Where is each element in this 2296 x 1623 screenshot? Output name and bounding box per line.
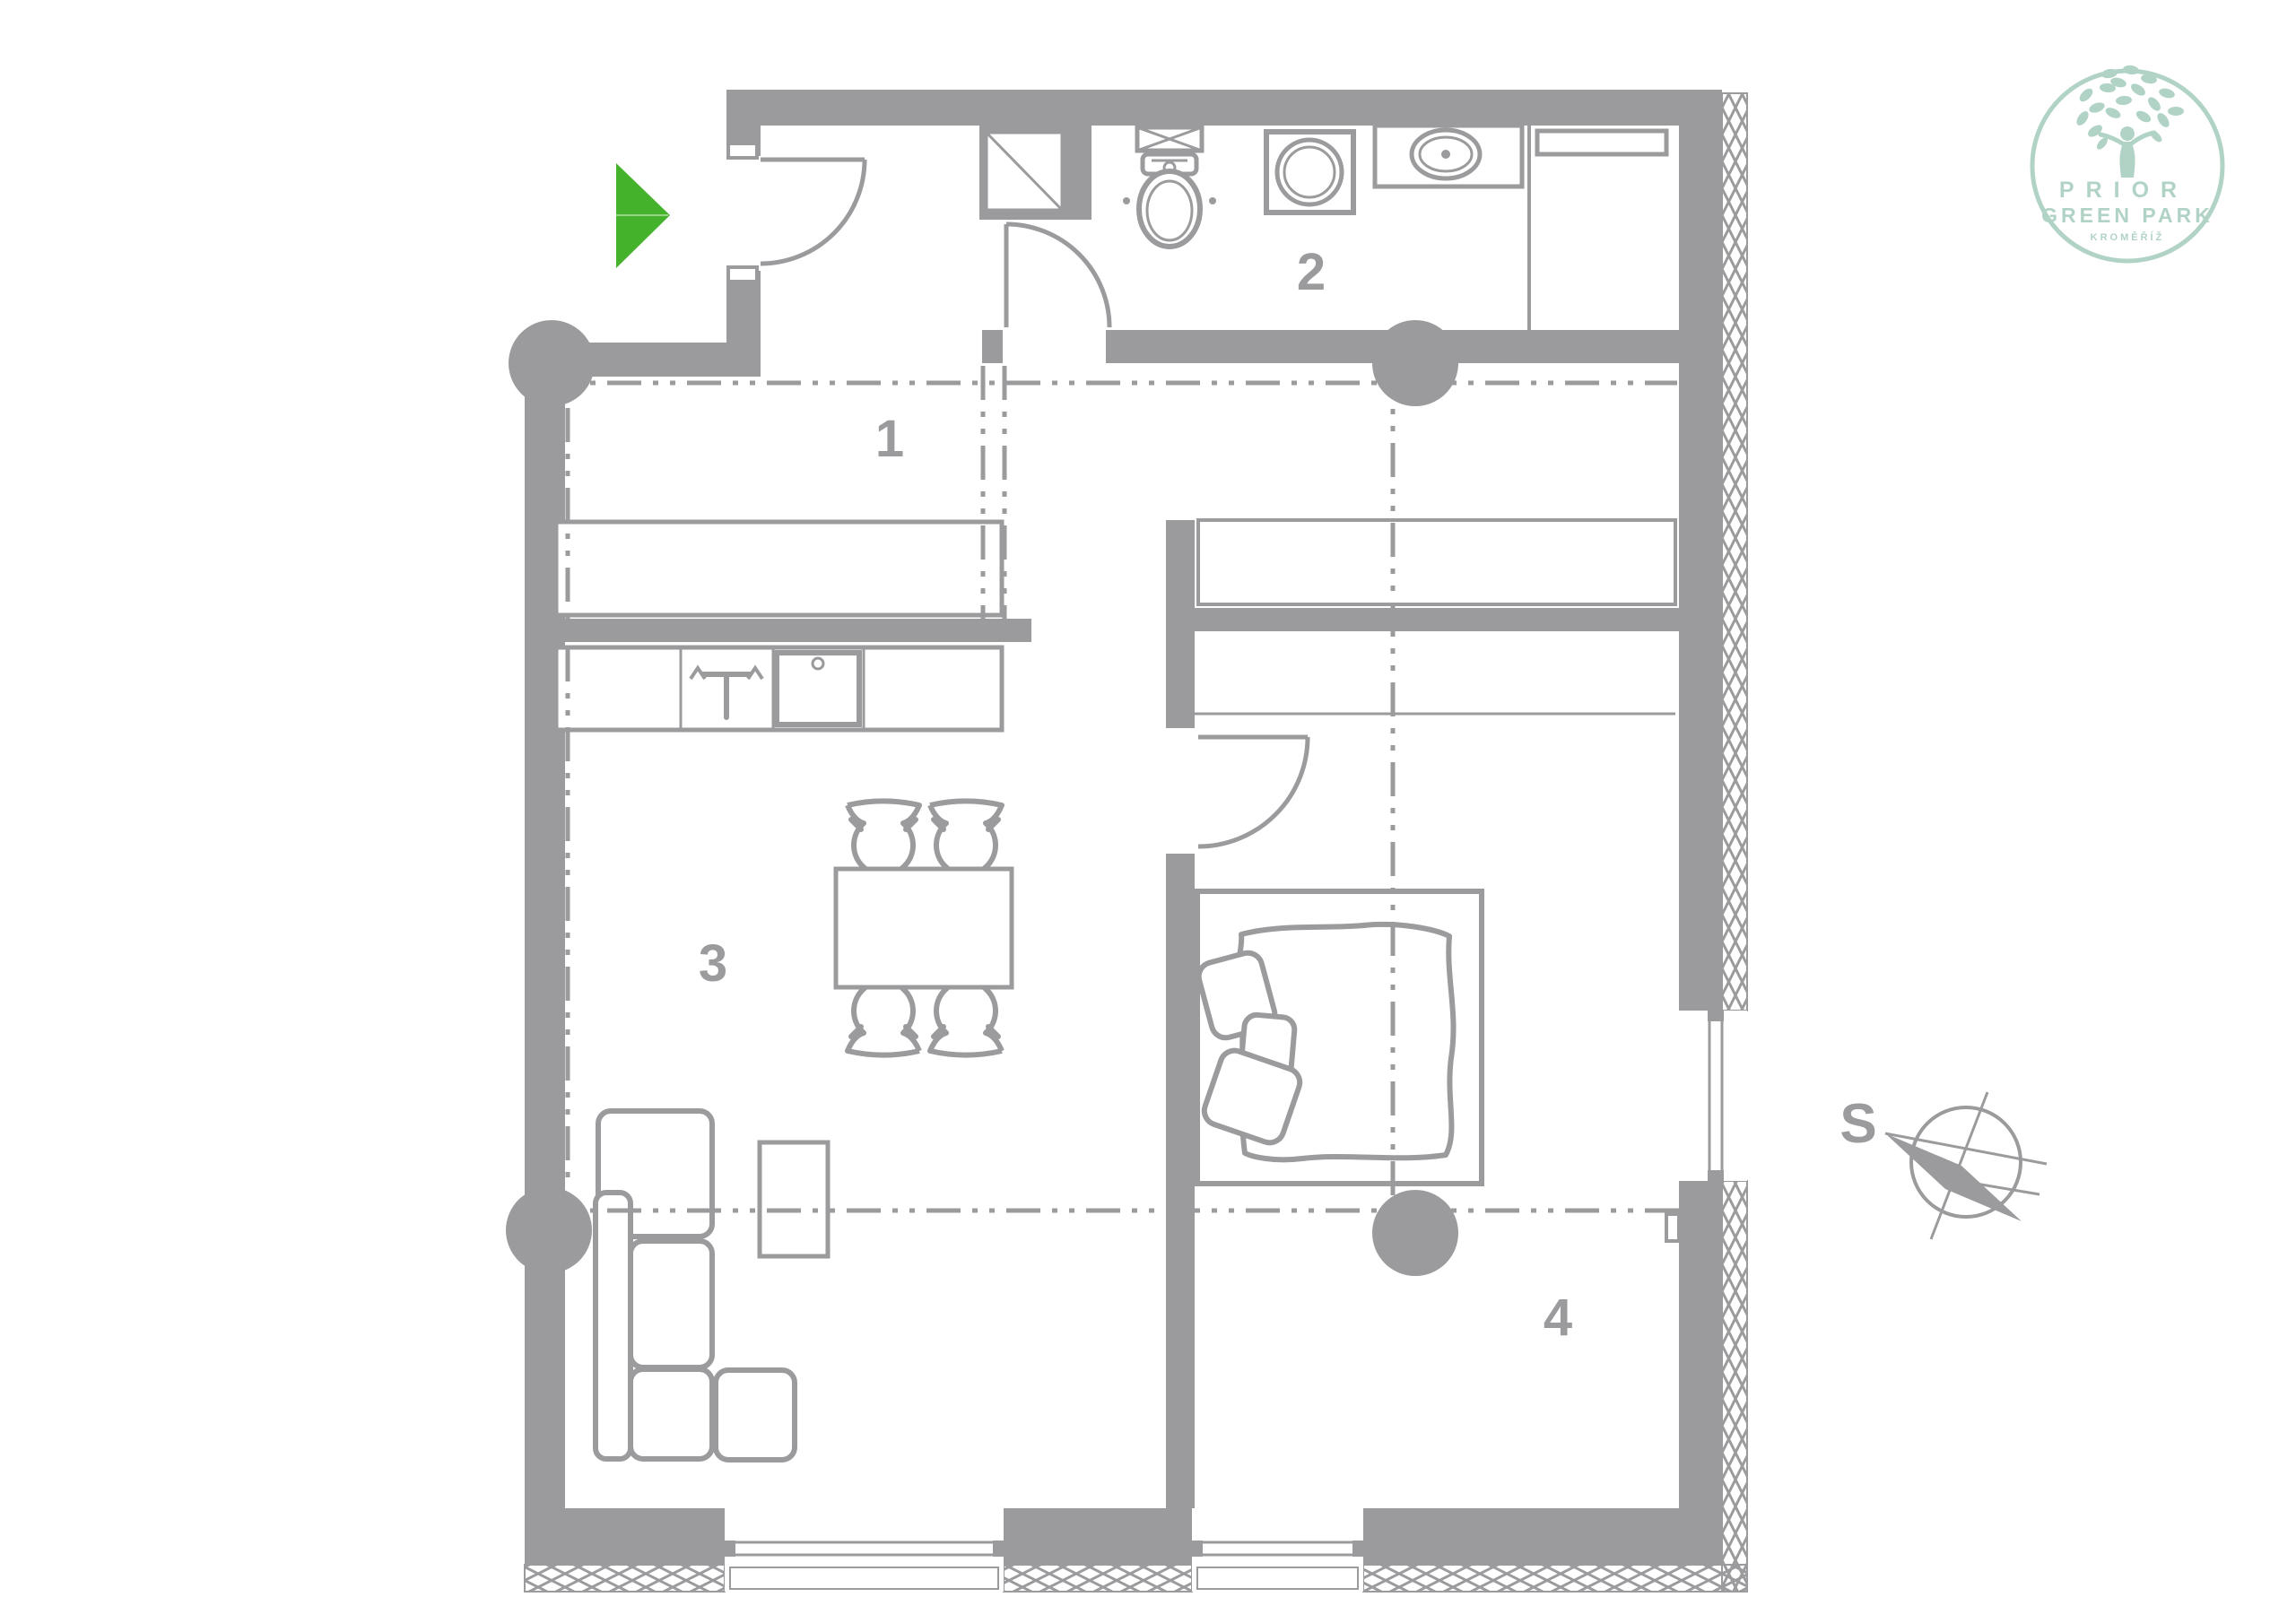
wall-right — [1679, 90, 1722, 1565]
room-label-2: 2 — [1297, 243, 1326, 301]
bathroom-sink — [1375, 126, 1522, 187]
window-bedroom — [1192, 1508, 1363, 1592]
hall-south-wall — [525, 619, 1031, 642]
kitchen-sink — [777, 653, 859, 725]
partition-wall-lower — [1166, 854, 1195, 1508]
hatch-bottom-a — [525, 1565, 725, 1592]
entrance-arrow-icon — [616, 163, 670, 268]
room-label-1: 1 — [875, 410, 904, 468]
logo-city: KROMĚŘÍŽ — [2091, 231, 2165, 243]
hatch-right-lower — [1722, 1181, 1747, 1592]
entrance-door — [728, 143, 865, 282]
bedroom-north-wall — [1193, 608, 1679, 631]
compass-south-label: S — [1839, 1093, 1876, 1155]
dining-chair — [930, 802, 1002, 875]
dining-table — [836, 869, 1012, 987]
hall-wardrobe — [556, 522, 1002, 615]
bedroom-door — [1198, 737, 1308, 846]
coffee-table — [760, 1142, 828, 1256]
bathroom-south-wall-a — [982, 330, 1003, 363]
door-jamb — [728, 143, 757, 158]
room-label-4: 4 — [1544, 1289, 1572, 1347]
column — [506, 1187, 592, 1273]
dining-chair — [848, 802, 919, 875]
shower-area — [1529, 126, 1666, 334]
floor-plan-svg: 1 2 3 4 S — [0, 0, 2296, 1623]
logo: PRIOR GREEN PARK KROMĚŘÍŽ — [2032, 65, 2222, 261]
hatch-right-upper — [1722, 93, 1747, 1011]
column — [1372, 1190, 1458, 1276]
shower-shelf — [1537, 131, 1666, 154]
logo-brand: PRIOR — [2059, 178, 2188, 203]
hatch-bottom-c — [1363, 1565, 1747, 1592]
bedroom-top-wardrobe — [1198, 520, 1675, 604]
column — [1372, 320, 1458, 406]
room-label-3: 3 — [699, 934, 727, 993]
door-swing-arc — [1198, 737, 1308, 846]
window-handle — [1666, 1214, 1679, 1241]
grid-axes — [527, 363, 1704, 1228]
dining-chair — [848, 981, 919, 1055]
door-swing-arc — [1006, 224, 1109, 327]
logo-subbrand: GREEN PARK — [2041, 204, 2213, 227]
door-swing-arc — [761, 160, 865, 264]
ottoman — [716, 1370, 795, 1460]
bed — [1196, 891, 1482, 1184]
wall-bottom — [525, 1508, 1722, 1565]
column — [509, 320, 595, 406]
toilet — [1123, 127, 1216, 247]
wall-top — [726, 90, 1722, 126]
floor-plan-page: 1 2 3 4 S — [0, 0, 2296, 1623]
bathroom-door — [1006, 224, 1109, 327]
hatch-bottom-b — [1004, 1565, 1192, 1592]
dining-set — [836, 802, 1012, 1055]
partition-wall-upper — [1166, 520, 1195, 728]
washing-machine — [1266, 132, 1353, 213]
window-living — [725, 1508, 1004, 1592]
shaft — [986, 132, 1063, 211]
door-jamb — [728, 267, 757, 282]
kitchen-counter — [556, 647, 1002, 730]
compass: S — [1839, 1092, 2047, 1239]
dining-chair — [930, 981, 1002, 1055]
